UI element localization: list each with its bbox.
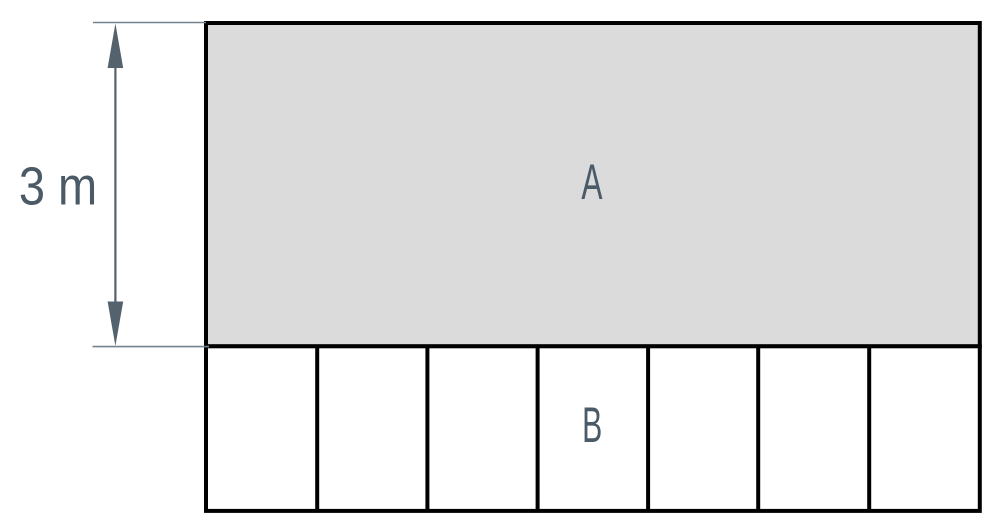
svg-text:A: A <box>581 154 602 210</box>
svg-text:B: B <box>582 396 602 453</box>
svg-text:3 m: 3 m <box>19 156 97 217</box>
